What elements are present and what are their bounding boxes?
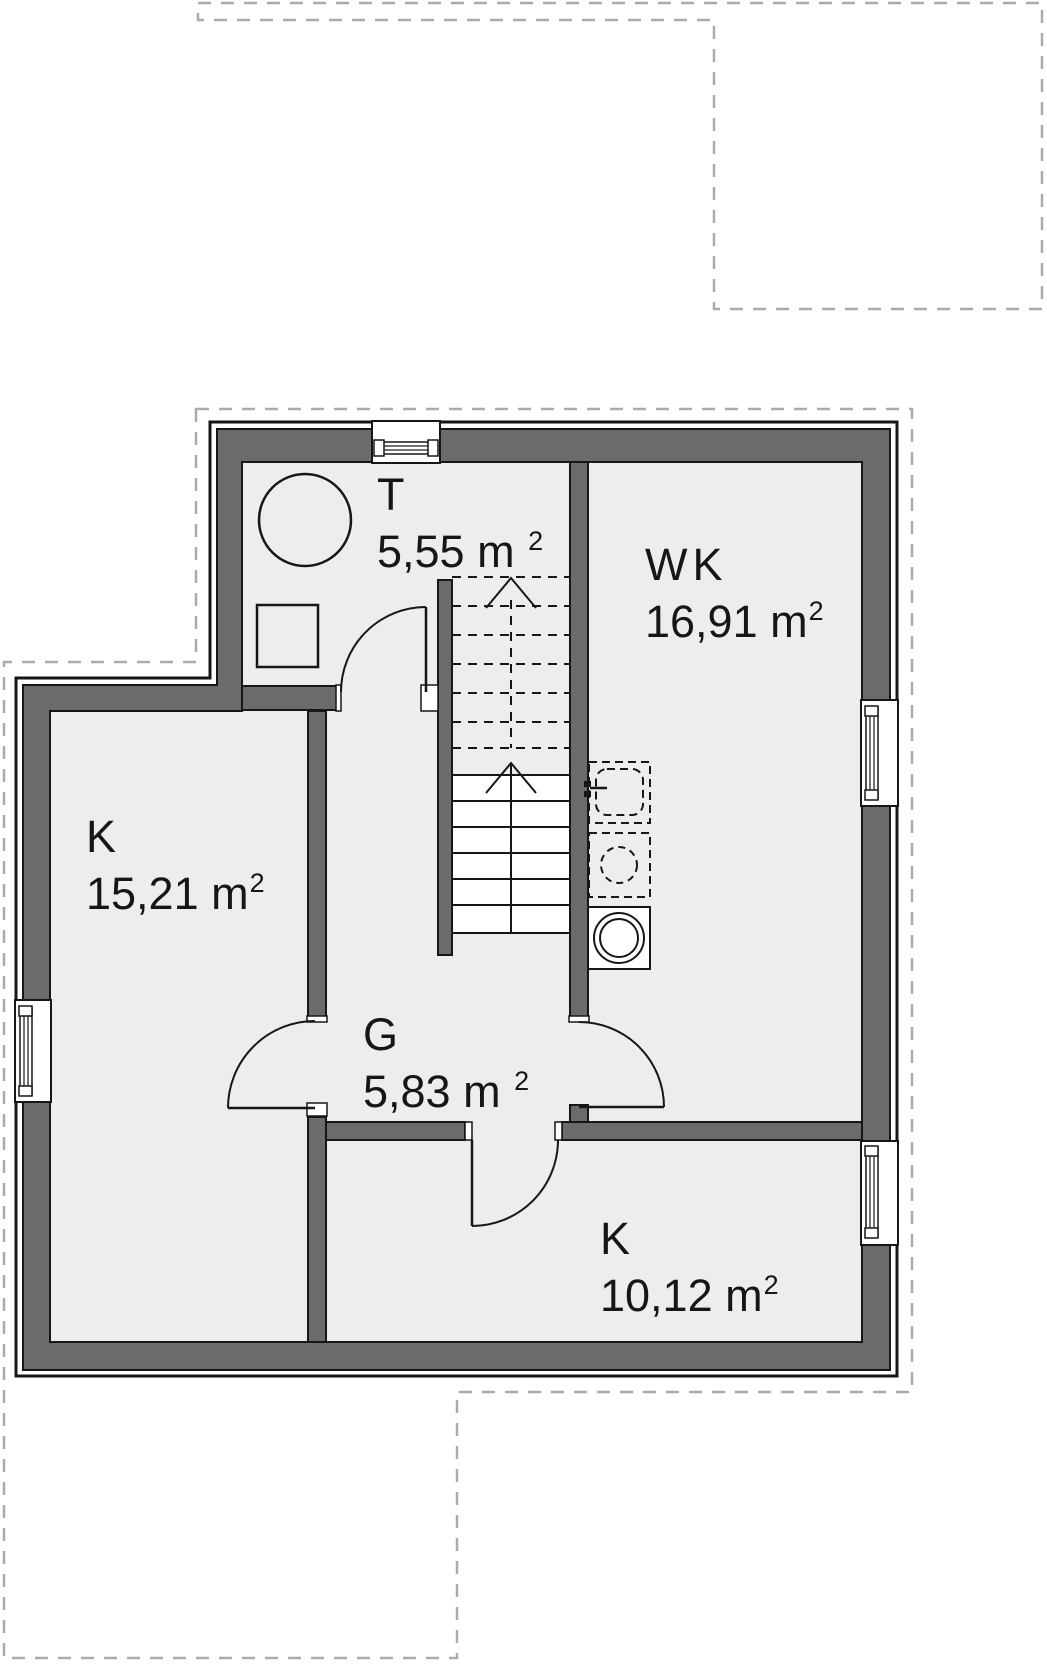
room-name: T (377, 466, 543, 523)
stair-right-wall (570, 462, 588, 1020)
room-label-toilet: T 5,55 m 2 (377, 466, 543, 587)
room-label-living: WK 16,91 m2 (645, 536, 824, 657)
floor-plan: T 5,55 m 2 WK 16,91 m2 K 15,21 m2 G 5,83… (0, 0, 1047, 1667)
washing-machine-icon (588, 907, 650, 969)
room-left-east-wall-lower (308, 1117, 326, 1342)
window-right-bottom (861, 1141, 898, 1245)
window-top (372, 421, 440, 463)
room-label-room-left: K 15,21 m2 (86, 808, 265, 929)
room-name: WK (645, 536, 824, 593)
window-right-living (861, 700, 898, 806)
room-name: G (363, 1006, 529, 1063)
room-area: 5,55 m 2 (377, 526, 543, 577)
room-area: 5,83 m 2 (363, 1066, 529, 1117)
room-area: 10,12 m2 (600, 1270, 779, 1321)
room-name: K (86, 808, 265, 865)
room-left-east-wall-upper (308, 711, 326, 1018)
room-area: 15,21 m2 (86, 868, 265, 919)
hall-south-wall-right (562, 1122, 862, 1140)
room-name: K (600, 1210, 779, 1267)
window-left (15, 1000, 51, 1102)
room-label-room-bottom: K 10,12 m2 (600, 1210, 779, 1331)
room-label-hall: G 5,83 m 2 (363, 1006, 529, 1127)
room-area: 16,91 m2 (645, 596, 824, 647)
stair-left-wall (438, 580, 452, 955)
toilet-south-wall (242, 686, 337, 710)
lower-floor-outline-top (198, 3, 1042, 309)
